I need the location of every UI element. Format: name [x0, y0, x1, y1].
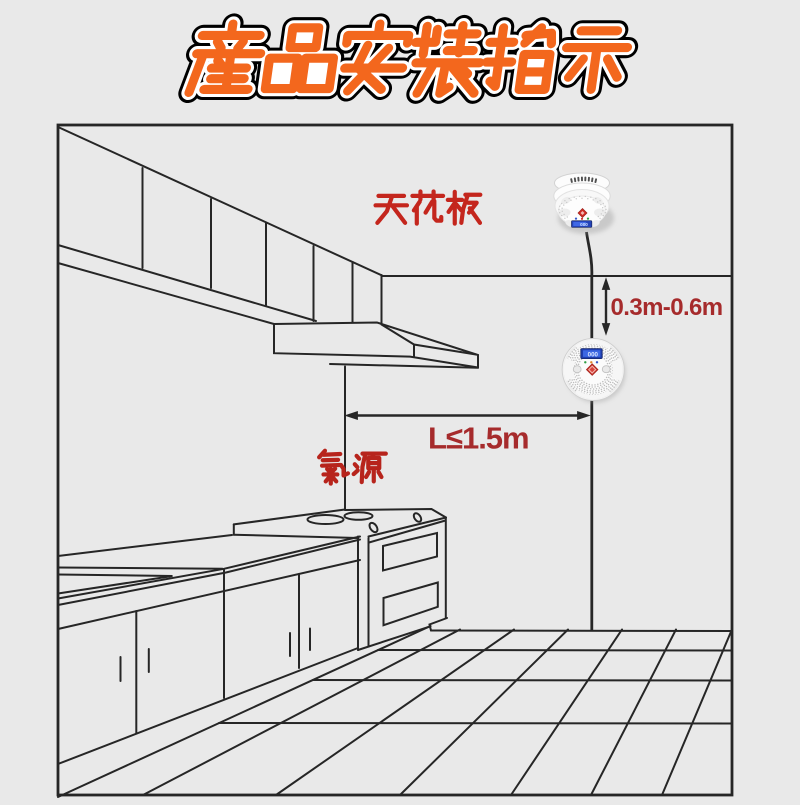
- svg-text:000: 000: [580, 222, 588, 227]
- svg-text:0.3m-0.6m: 0.3m-0.6m: [611, 294, 723, 321]
- svg-text:L≤1.5m: L≤1.5m: [428, 421, 529, 456]
- svg-text:000: 000: [588, 351, 599, 358]
